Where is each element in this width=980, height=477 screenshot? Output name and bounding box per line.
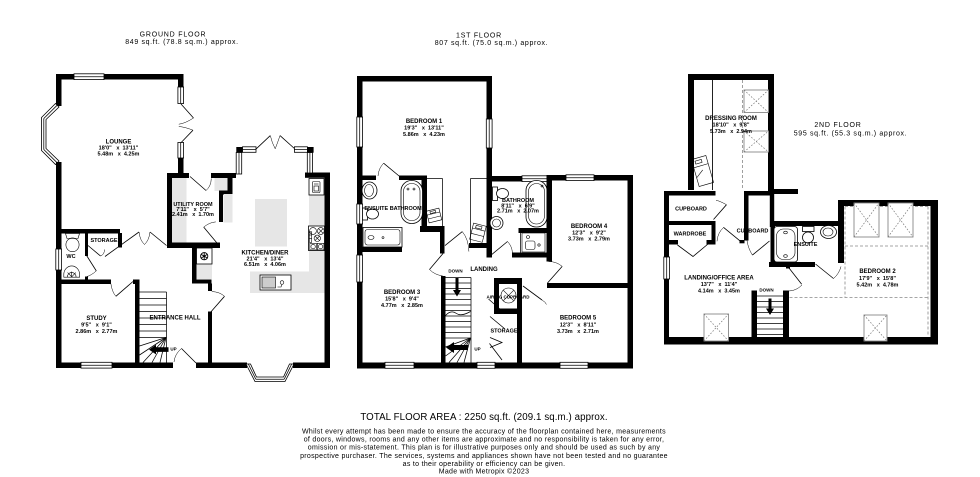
svg-text:5.48m x 4.25m: 5.48m x 4.25m — [98, 152, 140, 158]
svg-text:GROUND FLOOR: GROUND FLOOR — [140, 32, 207, 39]
svg-text:WARDROBE: WARDROBE — [674, 232, 707, 238]
svg-text:12'3" x 8'11": 12'3" x 8'11" — [560, 323, 597, 329]
svg-text:omission or mis-statement. Thi: omission or mis-statement. This plan is … — [308, 445, 661, 452]
svg-text:ENSUITE BATHROOM: ENSUITE BATHROOM — [364, 206, 422, 212]
svg-text:19'3" x 13'11": 19'3" x 13'11" — [404, 126, 444, 132]
svg-text:595 sq.ft. (55.3 sq.m.) approx: 595 sq.ft. (55.3 sq.m.) approx. — [794, 130, 908, 137]
svg-text:15'8" x 9'4": 15'8" x 9'4" — [385, 297, 419, 303]
svg-text:DRESSING ROOM: DRESSING ROOM — [705, 116, 757, 122]
svg-text:807 sq.ft. (75.0 sq.m.) approx: 807 sq.ft. (75.0 sq.m.) approx. — [435, 40, 549, 47]
svg-text:UP: UP — [474, 347, 480, 352]
svg-text:prospective purchaser. The ser: prospective purchaser. The services, sys… — [300, 453, 668, 460]
svg-text:13'7" x 11'4": 13'7" x 11'4" — [701, 282, 738, 288]
svg-text:AIRING CUPBOARD: AIRING CUPBOARD — [486, 295, 530, 300]
svg-text:9'5" x 9'1": 9'5" x 9'1" — [81, 323, 112, 329]
svg-text:WC: WC — [66, 254, 75, 260]
svg-text:CUPBOARD: CUPBOARD — [675, 207, 707, 213]
svg-text:DOWN: DOWN — [759, 288, 773, 293]
svg-text:849 sq.ft. (78.8 sq.m.) approx: 849 sq.ft. (78.8 sq.m.) approx. — [125, 39, 239, 46]
svg-text:4.14m x 3.45m: 4.14m x 3.45m — [698, 289, 740, 295]
svg-text:LANDING: LANDING — [470, 267, 498, 273]
svg-text:3.73m x 2.79m: 3.73m x 2.79m — [568, 236, 610, 242]
svg-text:4.77m x 2.85m: 4.77m x 2.85m — [381, 303, 423, 309]
svg-text:17'9" x 15'8": 17'9" x 15'8" — [859, 276, 896, 282]
svg-text:BEDROOM 2: BEDROOM 2 — [859, 269, 896, 275]
svg-text:2.71m x 2.07m: 2.71m x 2.07m — [497, 209, 539, 215]
svg-text:2.41m x 1.70m: 2.41m x 1.70m — [172, 212, 214, 218]
svg-text:18'10" x 9'8": 18'10" x 9'8" — [713, 123, 750, 129]
svg-text:BEDROOM 3: BEDROOM 3 — [384, 290, 421, 296]
svg-text:1ST FLOOR: 1ST FLOOR — [456, 33, 502, 40]
svg-text:LANDING/OFFICE AREA: LANDING/OFFICE AREA — [684, 276, 754, 282]
svg-text:5.42m x 4.78m: 5.42m x 4.78m — [857, 283, 899, 289]
svg-text:5.86m x 4.23m: 5.86m x 4.23m — [403, 132, 445, 138]
svg-text:ENSUITE: ENSUITE — [794, 242, 818, 248]
svg-text:ENTRANCE HALL: ENTRANCE HALL — [150, 316, 201, 322]
svg-text:TOTAL FLOOR AREA : 2250 sq.ft.: TOTAL FLOOR AREA : 2250 sq.ft. (209.1 sq… — [360, 412, 607, 423]
svg-text:CUPBOARD: CUPBOARD — [737, 229, 769, 235]
svg-text:BEDROOM 5: BEDROOM 5 — [560, 316, 597, 322]
svg-text:3.73m x 2.71m: 3.73m x 2.71m — [557, 329, 599, 335]
svg-text:BEDROOM 4: BEDROOM 4 — [571, 224, 608, 230]
svg-text:2.86m x 2.77m: 2.86m x 2.77m — [76, 329, 118, 335]
svg-text:Whilst every attempt has been: Whilst every attempt has been made to en… — [302, 428, 666, 435]
svg-text:2ND FLOOR: 2ND FLOOR — [814, 122, 861, 129]
svg-text:BEDROOM 1: BEDROOM 1 — [406, 119, 443, 125]
svg-text:Made with Metropix ©2023: Made with Metropix ©2023 — [439, 468, 530, 476]
svg-text:STORAGE: STORAGE — [490, 329, 517, 335]
svg-text:of doors, windows, rooms and a: of doors, windows, rooms and any other i… — [304, 437, 665, 444]
svg-text:as to their operability or eff: as to their operability or efficiency ca… — [403, 461, 566, 468]
svg-text:UP: UP — [170, 347, 176, 352]
svg-text:DOWN: DOWN — [448, 269, 462, 274]
svg-text:LOUNGE: LOUNGE — [106, 140, 132, 146]
svg-text:STUDY: STUDY — [86, 316, 106, 322]
svg-text:5.73m x 2.94m: 5.73m x 2.94m — [710, 129, 752, 135]
svg-text:6.51m x 4.06m: 6.51m x 4.06m — [244, 262, 286, 268]
svg-text:STORAGE: STORAGE — [90, 238, 117, 244]
